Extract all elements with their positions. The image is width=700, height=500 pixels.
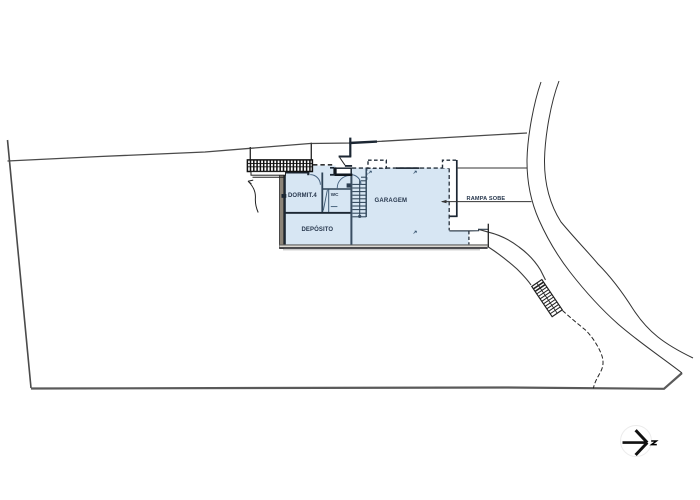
svg-text:WC: WC	[331, 192, 339, 197]
svg-text:DEPÓSITO: DEPÓSITO	[302, 225, 334, 233]
svg-text:GARAGEM: GARAGEM	[375, 198, 408, 204]
svg-text:DORMIT.4: DORMIT.4	[288, 193, 317, 199]
